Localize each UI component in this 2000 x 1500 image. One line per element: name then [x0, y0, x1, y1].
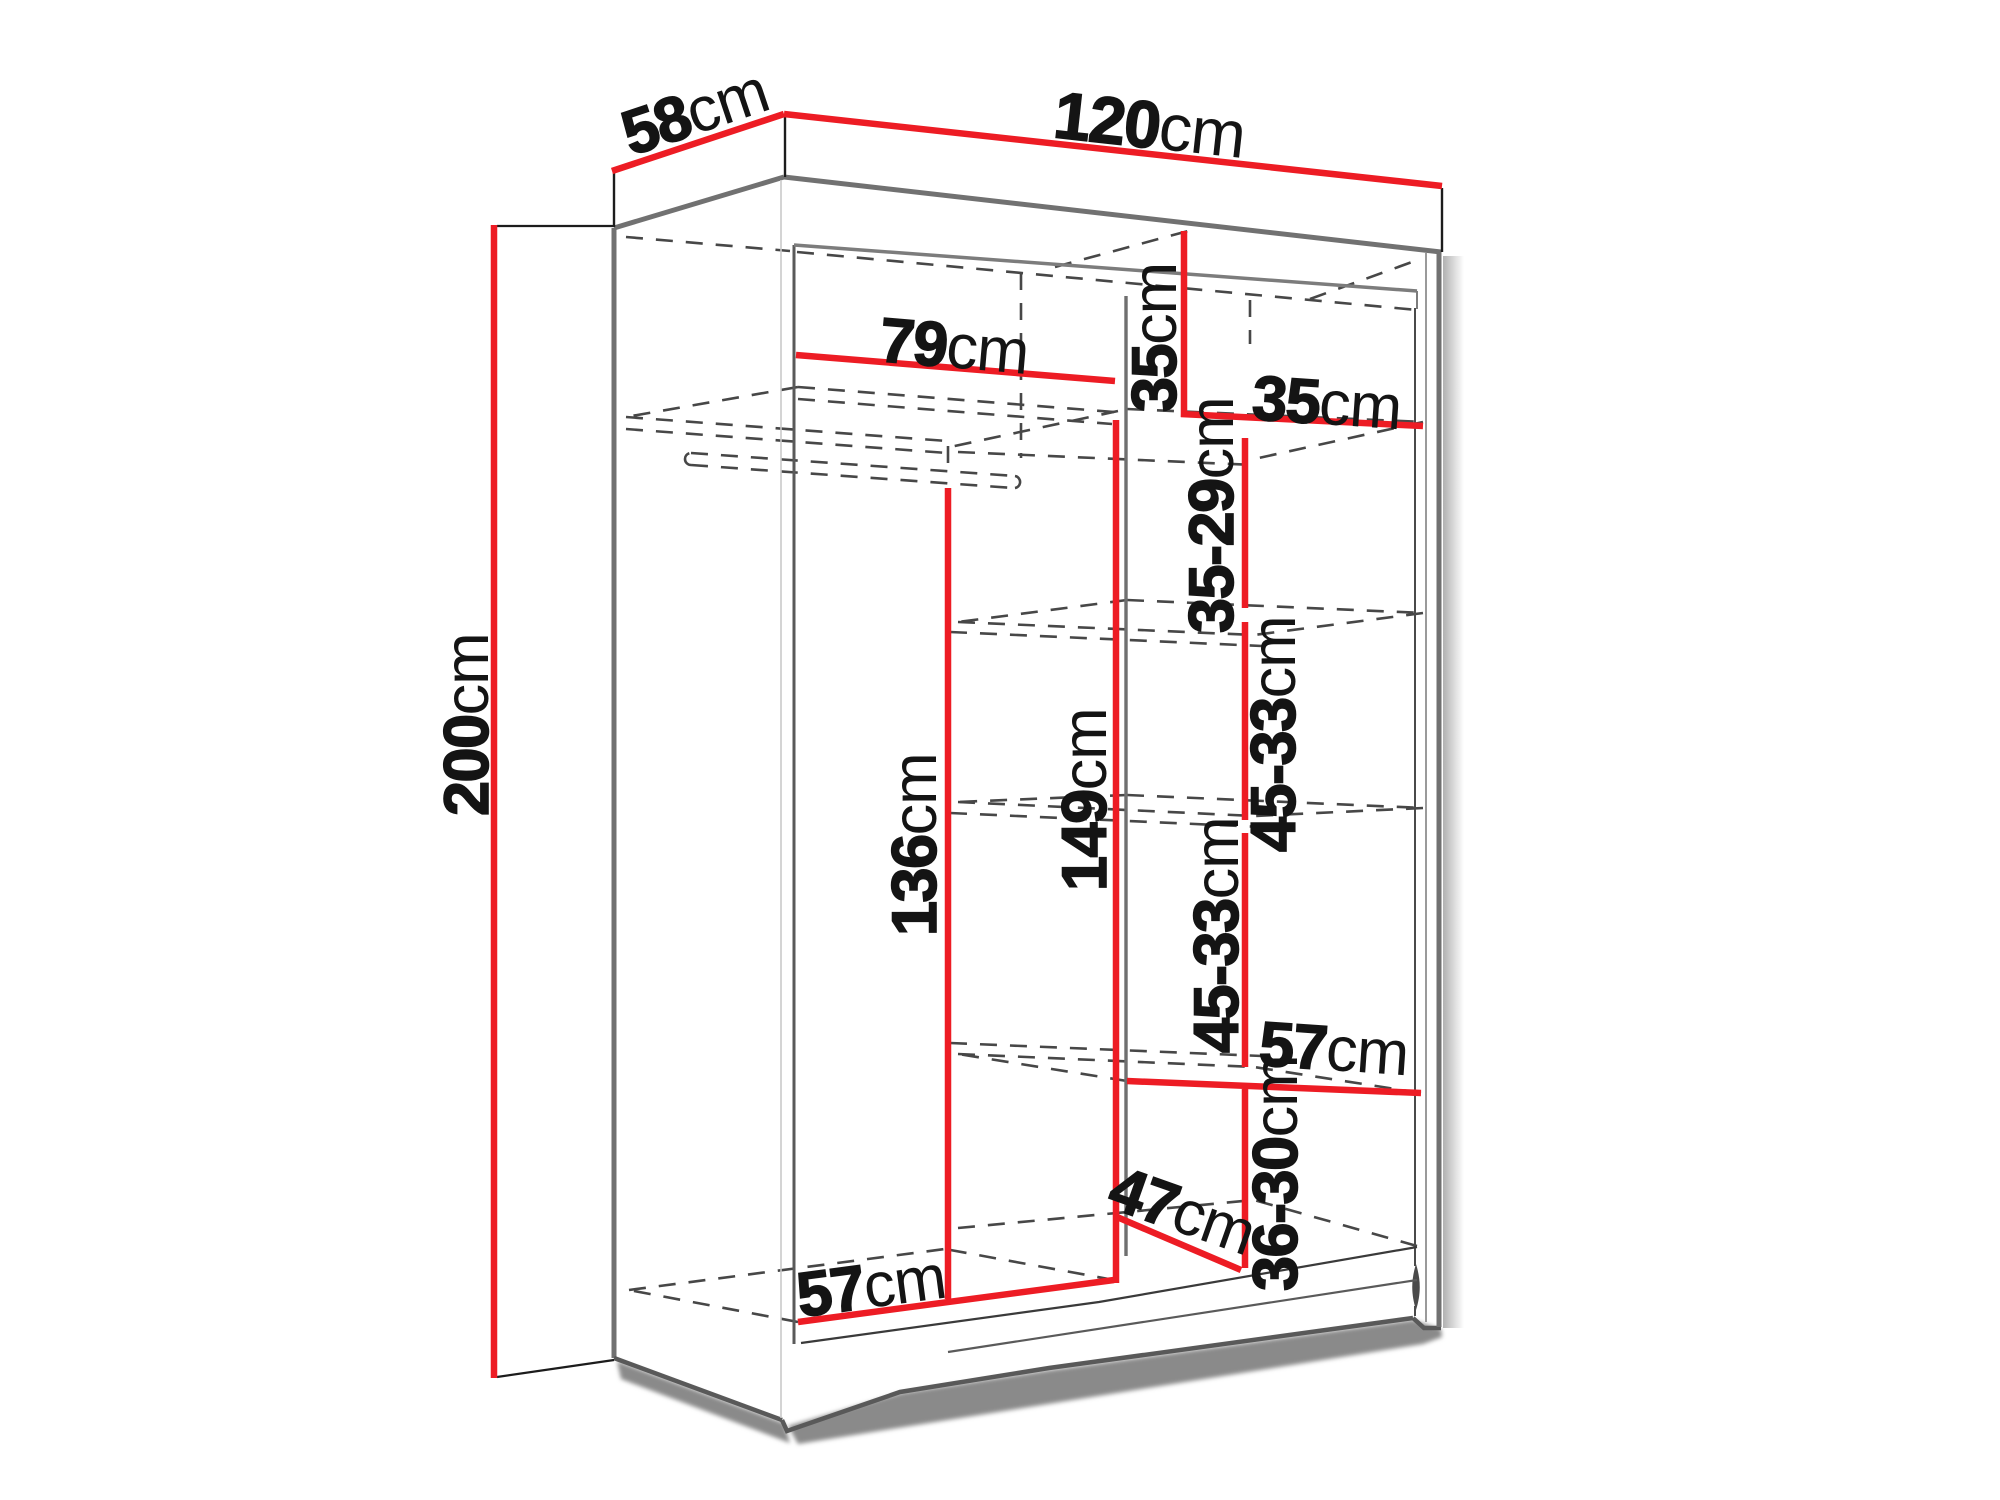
svg-text:200cm: 200cm: [432, 633, 502, 816]
svg-text:79cm: 79cm: [877, 305, 1032, 388]
svg-text:136cm: 136cm: [880, 753, 950, 936]
svg-text:57cm: 57cm: [1257, 1009, 1411, 1089]
svg-text:35-29cm: 35-29cm: [1177, 397, 1247, 633]
svg-text:35cm: 35cm: [1250, 363, 1404, 443]
svg-text:35cm: 35cm: [1120, 263, 1190, 412]
svg-text:45-33cm: 45-33cm: [1239, 616, 1309, 852]
svg-text:149cm: 149cm: [1050, 708, 1120, 891]
svg-text:45-33cm: 45-33cm: [1182, 817, 1252, 1053]
svg-text:36-30cm: 36-30cm: [1241, 1055, 1311, 1291]
